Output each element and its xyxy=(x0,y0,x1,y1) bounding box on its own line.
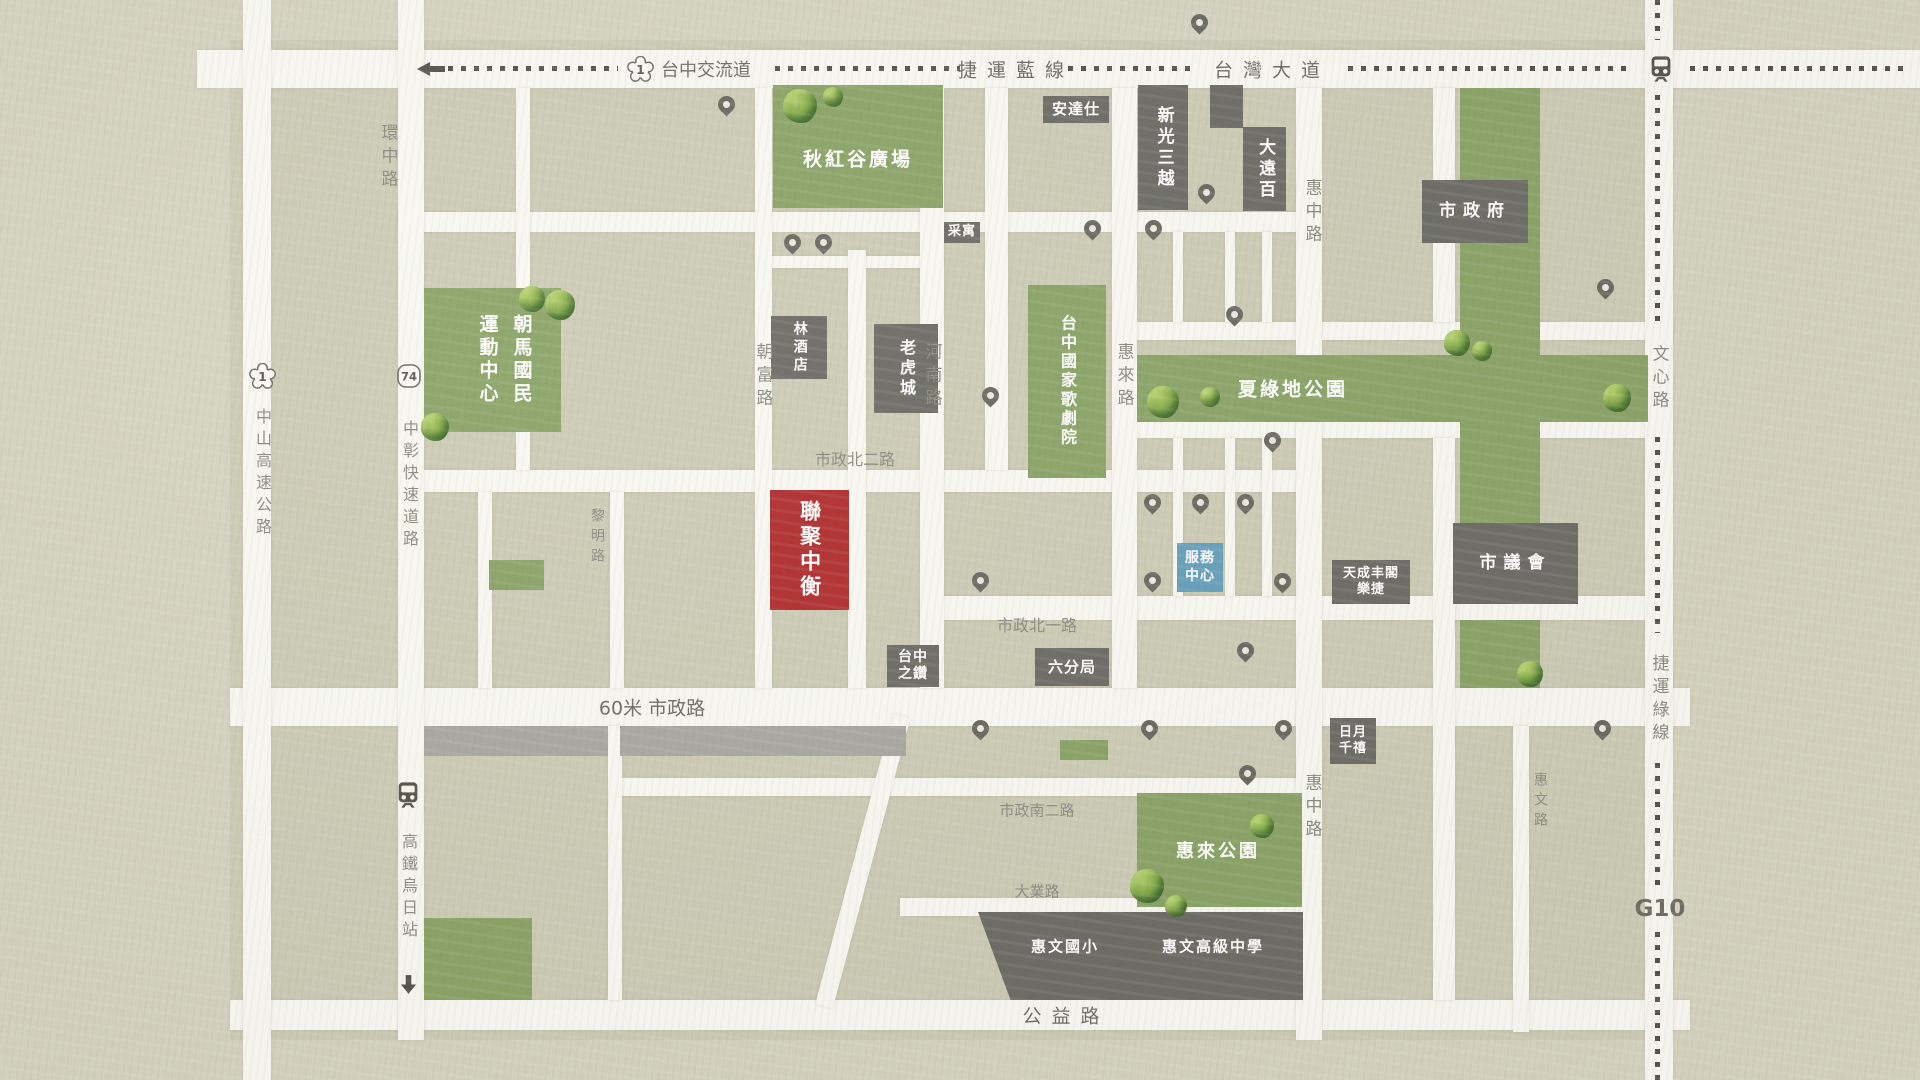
building-label: 林酒店 xyxy=(790,321,808,375)
tree-icon-13 xyxy=(1250,814,1274,838)
mrt-green-line-dash-4 xyxy=(1655,932,1660,1080)
park-label-chaoma-sports-center: 朝馬國民運動中心 xyxy=(475,314,536,406)
mrt-blue-line-dash-2 xyxy=(1068,66,1192,71)
tree-icon-11 xyxy=(1130,869,1164,903)
building-label-line: 天成丰閣 xyxy=(1343,566,1399,582)
tree-icon-10 xyxy=(1517,661,1543,687)
road-label-20: 大業路 xyxy=(1014,881,1059,902)
highway-shield-1-icon: 1 xyxy=(248,362,276,390)
mrt-green-line-dash-2 xyxy=(1655,437,1660,633)
arrow-left-icon xyxy=(416,59,446,79)
building-city-council: 市議會 xyxy=(1453,523,1578,604)
green-patch-1 xyxy=(424,918,532,1000)
road-label-8: 朝富路 xyxy=(751,343,776,412)
road-liming-road-south xyxy=(608,726,622,1000)
road-label-15: 捷運綠線 xyxy=(1647,654,1672,746)
road-label-16: 市政北二路 xyxy=(815,446,895,470)
road-label-5: 中彰快速道路 xyxy=(397,420,421,552)
road-label-22: G10 xyxy=(1635,896,1686,922)
building-taichung-diamond: 台中之鑽 xyxy=(887,645,939,687)
mrt-green-line-dash-3 xyxy=(1655,763,1660,888)
road-park-bottom-road-west xyxy=(1120,420,1465,438)
mrt-green-line-dash-0 xyxy=(1655,0,1660,40)
train-station-icon-0 xyxy=(1645,53,1677,85)
tree-icon-8 xyxy=(1472,341,1492,361)
building-service-center: 服務中心 xyxy=(1177,543,1223,592)
road-huiwen-road xyxy=(1513,726,1529,1032)
road-shizheng-north-2nd-rd xyxy=(424,470,1322,492)
building-annex-block xyxy=(1210,85,1243,128)
road-shizheng-road xyxy=(230,688,1690,726)
building-label: 日月千禧 xyxy=(1339,725,1367,758)
road-label-10: 惠來路 xyxy=(1112,343,1137,412)
highway-shield-1-icon: 1 xyxy=(626,55,654,83)
building-caiyu: 采寓 xyxy=(944,222,980,243)
arrow-down-icon xyxy=(393,974,423,994)
road-label-9: 河南路 xyxy=(920,343,945,412)
tree-icon-0 xyxy=(783,89,817,123)
highway-shield-74-icon: 74 xyxy=(395,362,423,390)
mrt-blue-line-dash-0 xyxy=(448,66,618,71)
building-top-city: 大遠百 xyxy=(1243,127,1286,211)
road-label-1: 捷運藍線 xyxy=(958,56,1074,83)
road-label-4: 中山高速公路 xyxy=(250,408,274,540)
train-station-icon-1 xyxy=(392,779,424,811)
road-council-west-lane-south xyxy=(1433,438,1455,1000)
road-label-18: 60米 市政路 xyxy=(599,694,705,721)
building-label-line: 之鑽 xyxy=(898,666,928,684)
park-label-xialvdi-park: 夏綠地公園 xyxy=(1238,375,1348,402)
road-gongyi-road xyxy=(230,1000,1690,1030)
mrt-green-line-dash-1 xyxy=(1655,95,1660,322)
svg-text:1: 1 xyxy=(258,369,267,384)
gray-strip-1 xyxy=(620,726,906,756)
building-andaz-hotel: 安達仕 xyxy=(1043,96,1109,123)
road-label-12: 惠中路 xyxy=(1300,774,1325,843)
map-viewport: 秋紅谷廣場朝馬國民運動中心台中國家歌劇院夏綠地公園惠來公園安達仕新光三越大遠百市… xyxy=(0,0,1920,1080)
road-label-7: 黎明路 xyxy=(587,508,607,568)
building-label: 六分局 xyxy=(1048,658,1096,677)
building-label-line: 中心 xyxy=(1185,568,1215,586)
road-label-2: 台灣大道 xyxy=(1214,56,1330,83)
road-lane-b-south xyxy=(1225,438,1235,596)
gray-strip-0 xyxy=(424,726,608,756)
building-label: 市政府 xyxy=(1439,201,1511,222)
road-label-17: 市政北一路 xyxy=(997,612,1077,636)
building-city-hall: 市政府 xyxy=(1422,180,1528,243)
svg-text:74: 74 xyxy=(401,370,417,384)
building-label: 聯聚中衡 xyxy=(796,500,822,600)
tree-icon-4 xyxy=(421,413,449,441)
building-shinkong-mitsukoshi: 新光三越 xyxy=(1138,85,1188,210)
mrt-blue-line-dash-3 xyxy=(1348,66,1632,71)
road-label-19: 市政南二路 xyxy=(999,800,1074,821)
park-label-line: 朝馬國民 xyxy=(509,314,536,406)
road-lane-c-south xyxy=(1262,438,1272,596)
tree-icon-9 xyxy=(1603,384,1631,412)
road-north-sub-road xyxy=(398,212,1322,232)
building-label-line: 台中 xyxy=(898,649,928,667)
building-label: 老虎城 xyxy=(896,339,916,399)
park-label-qiuhonggu-plaza: 秋紅谷廣場 xyxy=(803,145,913,172)
building-lianju-zhongheng: 聯聚中衡 xyxy=(770,490,849,610)
green-patch-2 xyxy=(1060,740,1108,760)
road-label-0: 台中交流道 xyxy=(661,56,751,82)
road-label-6: 高鐵烏日站 xyxy=(396,833,420,943)
green-patch-0 xyxy=(489,560,544,590)
road-label-14: 文心路 xyxy=(1647,345,1672,414)
road-label-11: 惠中路 xyxy=(1300,179,1325,248)
road-lower-left-lane xyxy=(478,492,492,688)
park-label-line: 運動中心 xyxy=(475,314,502,406)
road-label-3: 環中路 xyxy=(376,124,401,193)
tree-icon-2 xyxy=(519,286,545,312)
mrt-blue-line-dash-4 xyxy=(1690,66,1910,71)
building-label: 大遠百 xyxy=(1254,138,1275,201)
svg-text:1: 1 xyxy=(636,62,645,77)
tree-icon-7 xyxy=(1444,330,1470,356)
road-park-top-road-west xyxy=(1120,322,1465,340)
tree-icon-6 xyxy=(1200,387,1220,407)
building-label: 安達仕 xyxy=(1052,100,1100,119)
park-label-taichung-opera-house: 台中國家歌劇院 xyxy=(1055,315,1079,448)
building-millennium-hotel: 日月千禧 xyxy=(1330,718,1376,764)
building-label-line: 日月 xyxy=(1339,725,1367,741)
tree-icon-3 xyxy=(545,290,575,320)
road-zhongshan-highway xyxy=(243,0,271,1080)
road-label-13: 惠文路 xyxy=(1530,772,1550,832)
school-label-0: 惠文國小 xyxy=(1031,936,1099,957)
road-label-21: 公益路 xyxy=(1022,1002,1109,1029)
tree-icon-1 xyxy=(823,87,843,107)
school-label-1: 惠文高級中學 xyxy=(1162,936,1264,957)
building-label-line: 服務 xyxy=(1185,550,1215,568)
building-label-line: 樂捷 xyxy=(1343,582,1399,598)
building-label: 采寓 xyxy=(948,224,976,240)
building-label: 天成丰閣樂捷 xyxy=(1343,566,1399,599)
building-tiancheng-fengge-leijie: 天成丰閣樂捷 xyxy=(1332,560,1410,604)
tree-icon-5 xyxy=(1147,386,1179,418)
building-label: 市議會 xyxy=(1480,553,1552,574)
map-canvas: 秋紅谷廣場朝馬國民運動中心台中國家歌劇院夏綠地公園惠來公園安達仕新光三越大遠百市… xyxy=(0,0,1920,1080)
building-label: 服務中心 xyxy=(1185,550,1215,585)
building-label: 新光三越 xyxy=(1152,106,1173,190)
road-lane-a-north xyxy=(1173,232,1183,322)
road-lane-opera-west xyxy=(985,88,1008,470)
tree-icon-12 xyxy=(1165,895,1187,917)
road-liming-road xyxy=(610,492,624,688)
building-label-line: 千禧 xyxy=(1339,741,1367,757)
building-label: 台中之鑽 xyxy=(898,649,928,684)
road-lane-c-north xyxy=(1262,232,1272,322)
mrt-blue-line-dash-1 xyxy=(775,66,960,71)
building-sixth-precinct: 六分局 xyxy=(1035,648,1109,686)
park-label-huilai-park: 惠來公園 xyxy=(1176,837,1260,863)
map-pin-icon-0 xyxy=(1187,10,1211,34)
building-lin-hotel: 林酒店 xyxy=(771,316,827,379)
